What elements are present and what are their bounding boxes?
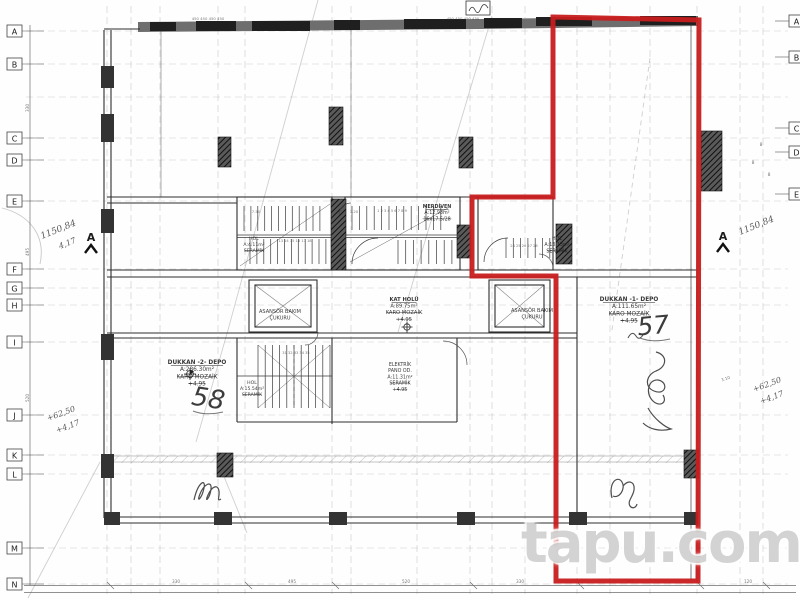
room-label-dukkan-58: A:286.30m²: [180, 366, 214, 373]
room-label-hol-lower: HOL: [247, 380, 257, 386]
section-markers: A A: [85, 230, 729, 253]
dimension-text: 1 2 3 4 5 6 7 8 9: [377, 209, 407, 213]
dimension-text: 8: [768, 172, 771, 178]
room-label-dukkan-58: KARO MOZAİK: [176, 373, 217, 380]
grid-letter: B: [794, 54, 800, 63]
grid-letter: L: [12, 471, 17, 480]
room-label-hol-notch: A:13.13m²: [544, 242, 569, 248]
grid-letter: D: [793, 149, 799, 158]
grid-letter: G: [11, 285, 17, 294]
dimension-text: 7.50: [252, 209, 261, 214]
scanned-floor-plan-page: A A ABCDEFGHIJKLMNABCDE MERDİVENA:12.93m…: [0, 0, 800, 600]
room-label-asansor-bakim-sol: ASANSÖR BAKIM: [259, 308, 301, 315]
grid-letter: D: [11, 157, 17, 166]
handwritten-unit-numbers: 5758: [190, 310, 671, 417]
room-label-merdiven: A:12.93m²: [424, 210, 449, 216]
dimension-text: 8: [760, 142, 763, 148]
room-label-dukkan-57: +4.95: [620, 319, 638, 325]
handwritten-note: 4,17: [56, 235, 78, 251]
grid-letter: A: [794, 18, 800, 27]
room-label-kat-holu: A:89.75m²: [390, 304, 417, 310]
red-unit-outline: [472, 17, 699, 581]
section-arrow-left-icon: [85, 245, 97, 253]
room-label-dukkan-57: A:111.65m²: [612, 303, 646, 310]
grid-letter: F: [12, 266, 17, 275]
room-label-elektrik-pano: PANO OD.: [388, 368, 412, 374]
dimension-text: 520: [25, 394, 30, 402]
room-label-hol-core: A:4.11m²: [243, 242, 264, 248]
unit-number-58: 58: [190, 382, 227, 417]
grid-letter: N: [12, 581, 18, 590]
grid-letter: J: [12, 412, 15, 421]
room-label-kat-holu: +4.95: [396, 317, 412, 323]
room-label-dukkan-57: DÜKKAN -1- DEPO: [600, 296, 659, 303]
room-label-merdiven: 16x17.5/28: [423, 216, 450, 222]
room-label-elektrik-pano: ELEKTRİK: [389, 361, 412, 368]
section-marker-a-left: A: [87, 231, 96, 244]
dimension-text: 120: [744, 579, 752, 584]
initials-paraf-left: [194, 483, 221, 500]
handwritten-notes: 1150,844,171150,84+62,50+4,17+62,50+4,17: [39, 214, 785, 434]
handwritten-note: +4,17: [759, 389, 786, 406]
wall-hatch-band: [107, 456, 697, 463]
grid-letter: C: [794, 125, 800, 134]
dimension-text: 24 25 26 27 28: [510, 244, 538, 248]
room-label-dukkan-58: DÜKKAN -2- DEPO: [168, 359, 227, 366]
handwritten-note: 1150,84: [737, 214, 776, 237]
revision-box: [466, 1, 490, 15]
dimension-text: 31 32 33 34 35: [282, 351, 309, 355]
grid-letter: C: [12, 135, 18, 144]
room-label-kat-holu: KAT HOLÜ: [389, 296, 418, 303]
dimension-text: 450 450 450 450: [192, 16, 225, 21]
handwritten-note: +4,17: [55, 418, 82, 435]
section-marker-a-right: A: [719, 230, 728, 243]
grid-letter: K: [12, 452, 18, 461]
dimension-text: 330: [516, 579, 524, 584]
dimension-text: 13 14 15 16 17 18: [278, 239, 312, 243]
unit-number-57: 57: [636, 310, 670, 342]
dimension-text: 330: [25, 104, 30, 112]
floor-plan-drawing: A A ABCDEFGHIJKLMNABCDE MERDİVENA:12.93m…: [0, 0, 800, 600]
grid-letter: E: [12, 198, 17, 207]
dimension-text: 8: [752, 160, 755, 166]
room-label-hol-core: HOL: [249, 236, 259, 242]
room-label-hol-notch: HOL: [552, 236, 562, 242]
grid-letter: B: [12, 61, 18, 70]
grid-letter: A: [12, 28, 18, 37]
room-label-asansor-bakim-sag: ASANSÖR BAKIM: [511, 307, 553, 314]
room-label-elektrik-pano: +4.95: [393, 387, 408, 393]
signature-flourish-right-unit: [643, 352, 671, 430]
room-label-elektrik-pano: A:11.31m²: [387, 374, 412, 380]
grid-letter: H: [11, 302, 17, 311]
grid-letter: M: [11, 545, 18, 554]
dimension-text: 1.20: [350, 209, 359, 214]
room-label-hol-lower: A:15.54m²: [240, 386, 264, 392]
grid-letter: E: [794, 191, 799, 200]
section-arrow-right-icon: [717, 244, 729, 252]
dimension-text: 520: [402, 579, 410, 584]
dimension-text: 495: [25, 248, 30, 256]
room-label-asansor-bakim-sag: ÇUKURU: [521, 314, 542, 320]
dimension-text: 3.10: [721, 375, 731, 383]
room-label-asansor-bakim-sol: ÇUKURU: [269, 315, 290, 321]
grid-letter: I: [13, 339, 15, 348]
dimension-text: 495: [288, 579, 296, 584]
room-label-merdiven: MERDİVEN: [423, 203, 452, 210]
dimension-text: 450 450 450 450: [447, 16, 480, 21]
dimension-text: 330: [172, 579, 180, 584]
initials-paraf-right: [611, 479, 637, 507]
room-labels: MERDİVENA:12.93m²16x17.5/28KAT HOLÜA:89.…: [168, 203, 659, 398]
